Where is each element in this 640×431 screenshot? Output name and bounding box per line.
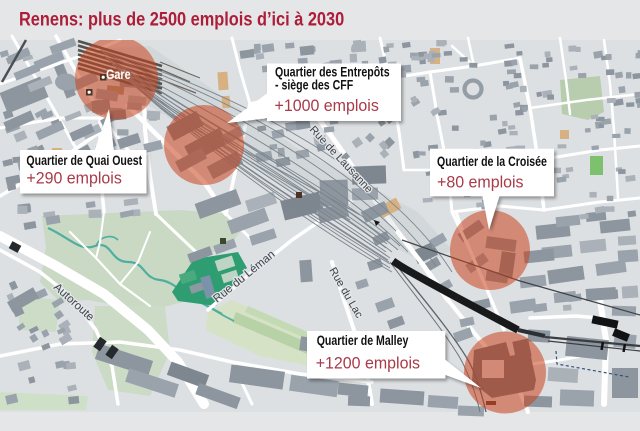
svg-text:+1200 emplois: +1200 emplois <box>316 354 420 373</box>
svg-text:- siège des CFF: - siège des CFF <box>275 77 353 93</box>
svg-text:Gare: Gare <box>106 67 131 82</box>
svg-text:+1000 emplois: +1000 emplois <box>275 97 379 116</box>
svg-text:Quartier de Malley: Quartier de Malley <box>317 333 409 349</box>
svg-text:Quartier de la Croisée: Quartier de la Croisée <box>437 154 547 170</box>
svg-text:Quartier de Quai Ouest: Quartier de Quai Ouest <box>26 153 142 169</box>
svg-text:+80 emplois: +80 emplois <box>437 173 524 192</box>
svg-text:Renens: plus de 2500 emplois d: Renens: plus de 2500 emplois d’ici à 203… <box>19 8 344 30</box>
svg-text:+290 emplois: +290 emplois <box>26 169 121 188</box>
